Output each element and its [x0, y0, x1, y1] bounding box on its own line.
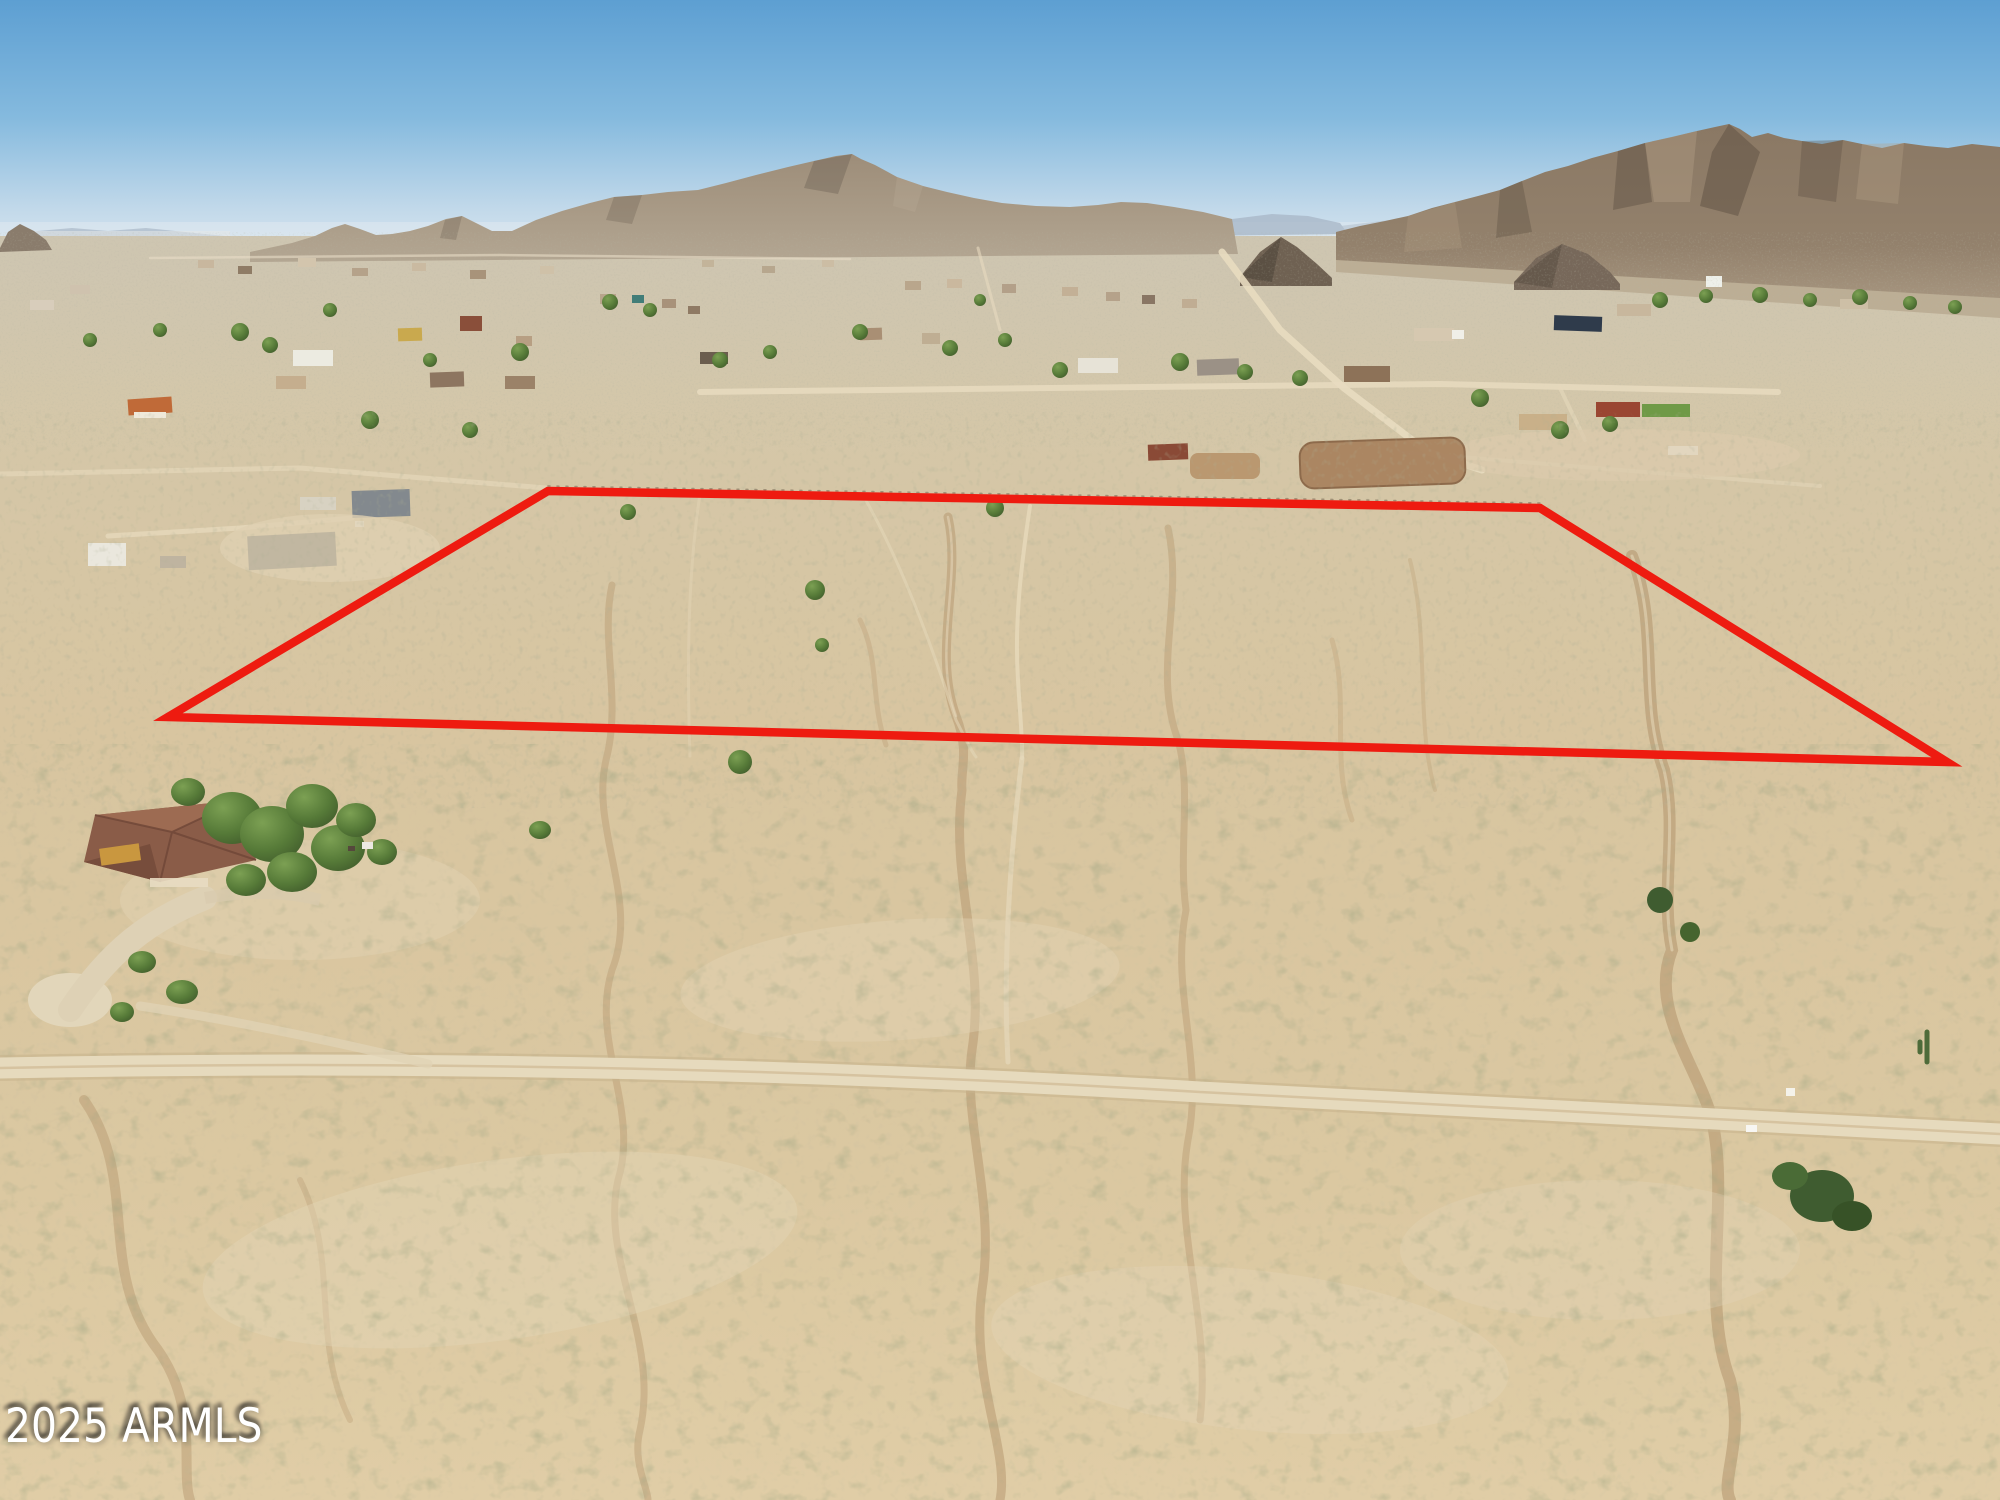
mailbox: [1786, 1088, 1795, 1096]
aerial-photo: 2025 ARMLS: [0, 0, 2000, 1500]
horse-shelter: [362, 842, 373, 849]
horse: [348, 846, 355, 851]
photo-canvas: [0, 0, 2000, 1500]
watermark: 2025 ARMLS: [5, 1399, 262, 1454]
vehicle-on-road: [1746, 1125, 1757, 1132]
